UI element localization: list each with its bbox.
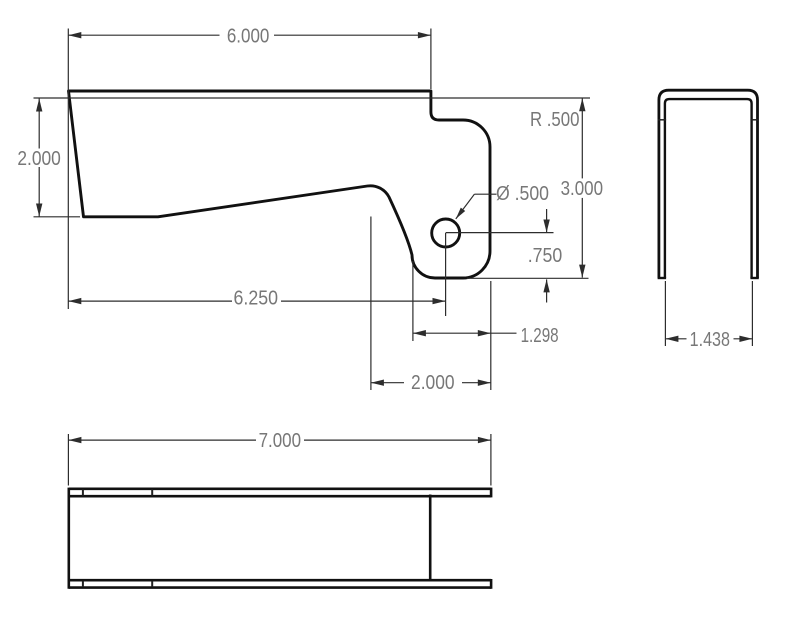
svg-text:Ø .500: Ø .500: [496, 182, 549, 205]
svg-text:.750: .750: [528, 244, 563, 267]
svg-text:2.000: 2.000: [411, 371, 455, 394]
svg-text:2.000: 2.000: [17, 147, 61, 170]
svg-text:1.298: 1.298: [521, 324, 559, 347]
svg-text:6.250: 6.250: [234, 287, 279, 310]
svg-text:3.000: 3.000: [561, 177, 603, 200]
svg-text:1.438: 1.438: [690, 328, 730, 351]
svg-text:R .500: R .500: [530, 108, 580, 131]
svg-text:7.000: 7.000: [259, 429, 301, 452]
svg-text:6.000: 6.000: [227, 24, 270, 47]
